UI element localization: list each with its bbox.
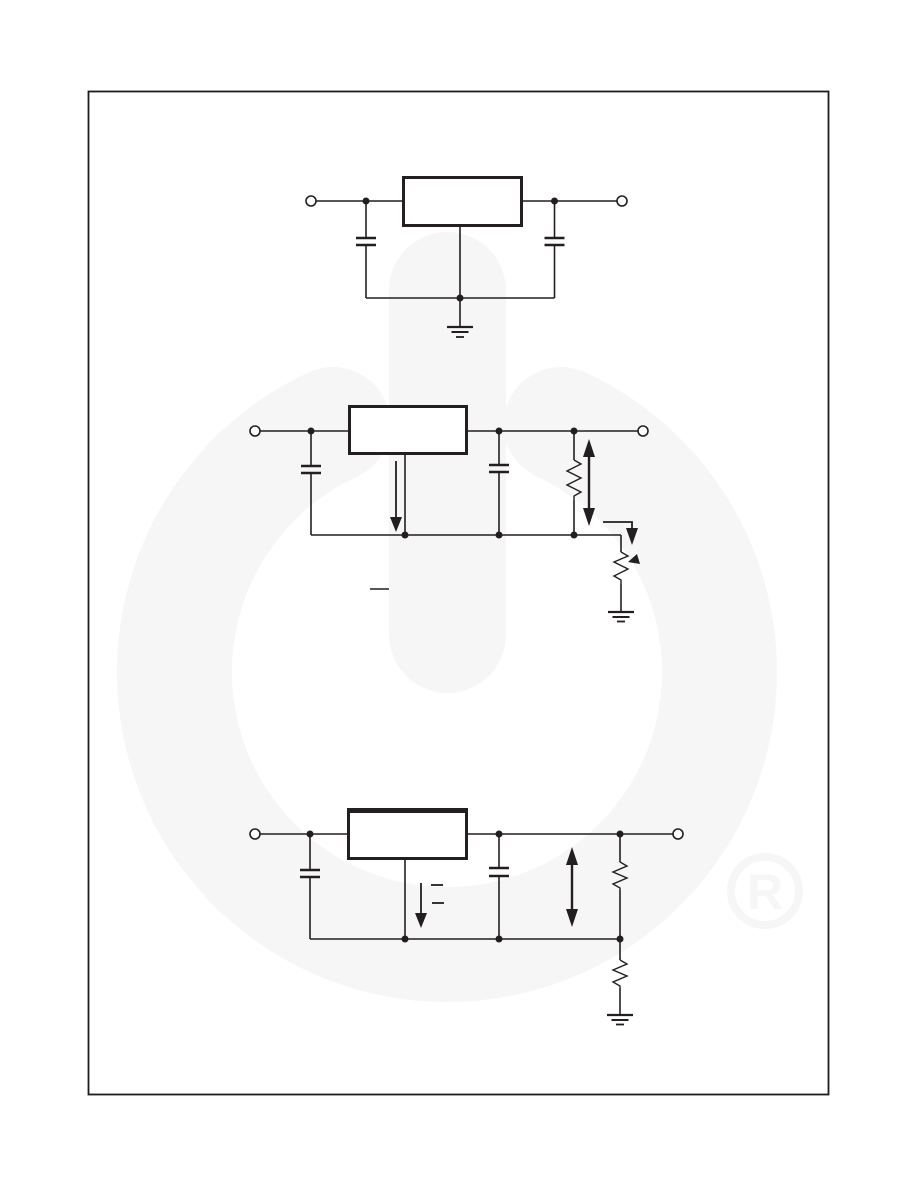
watermark-bar: [389, 232, 506, 693]
registered-trademark-letter: R: [747, 864, 783, 920]
arrowhead-down: [583, 508, 595, 526]
output-capacitor: [545, 201, 565, 298]
resistor-zigzag: [613, 960, 627, 988]
ground-symbol: [607, 1015, 633, 1025]
output-terminal: [638, 426, 648, 436]
ground-symbol: [608, 612, 634, 622]
input-terminal: [306, 196, 316, 206]
input-terminal: [250, 426, 260, 436]
registered-trademark-icon: R: [731, 857, 799, 925]
output-terminal: [673, 829, 683, 839]
datasheet-page: R: [0, 0, 918, 1188]
input-capacitor: [356, 201, 376, 298]
output-terminal: [617, 196, 627, 206]
regulator-box: [404, 178, 522, 226]
regulator-box: [349, 810, 467, 859]
power-symbol-logo-watermark: R: [175, 232, 800, 945]
regulator-box: [350, 407, 467, 454]
resistor-zigzag: [614, 552, 628, 584]
input-terminal: [250, 829, 260, 839]
